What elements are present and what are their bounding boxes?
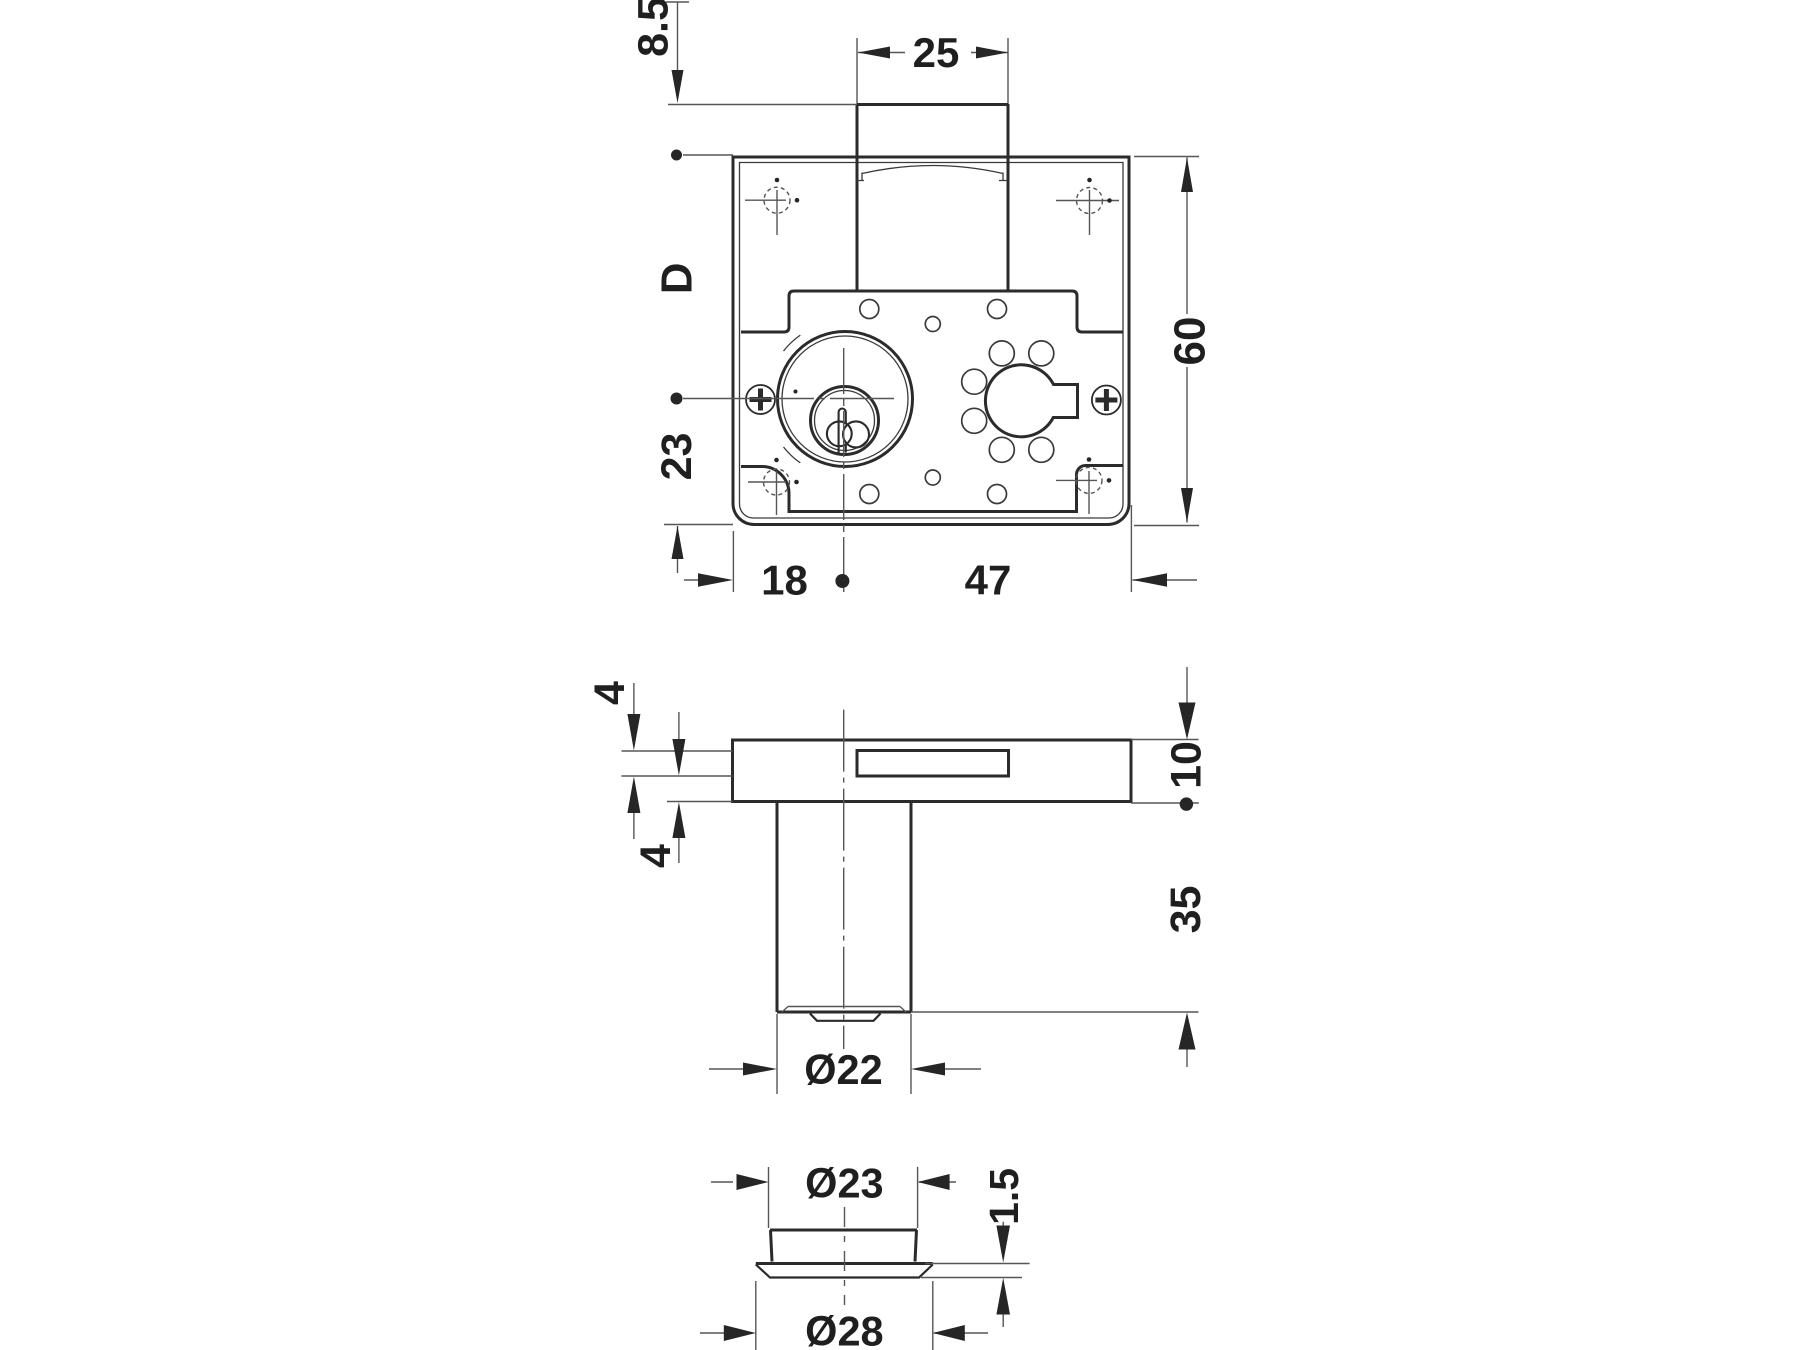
svg-text:18: 18 — [761, 557, 808, 604]
svg-text:Ø23: Ø23 — [805, 1160, 883, 1207]
svg-text:Ø22: Ø22 — [804, 1046, 882, 1093]
svg-text:1.5: 1.5 — [981, 1168, 1027, 1225]
svg-text:Ø28: Ø28 — [805, 1308, 883, 1350]
svg-text:10: 10 — [1163, 741, 1211, 789]
svg-text:60: 60 — [1166, 317, 1215, 366]
svg-text:23: 23 — [653, 433, 701, 481]
svg-text:4: 4 — [586, 681, 634, 705]
svg-text:D: D — [653, 262, 702, 294]
svg-text:8.5: 8.5 — [630, 0, 678, 57]
svg-text:47: 47 — [965, 557, 1012, 604]
svg-text:4: 4 — [632, 844, 680, 868]
svg-text:35: 35 — [1162, 886, 1210, 934]
svg-text:25: 25 — [913, 29, 960, 76]
